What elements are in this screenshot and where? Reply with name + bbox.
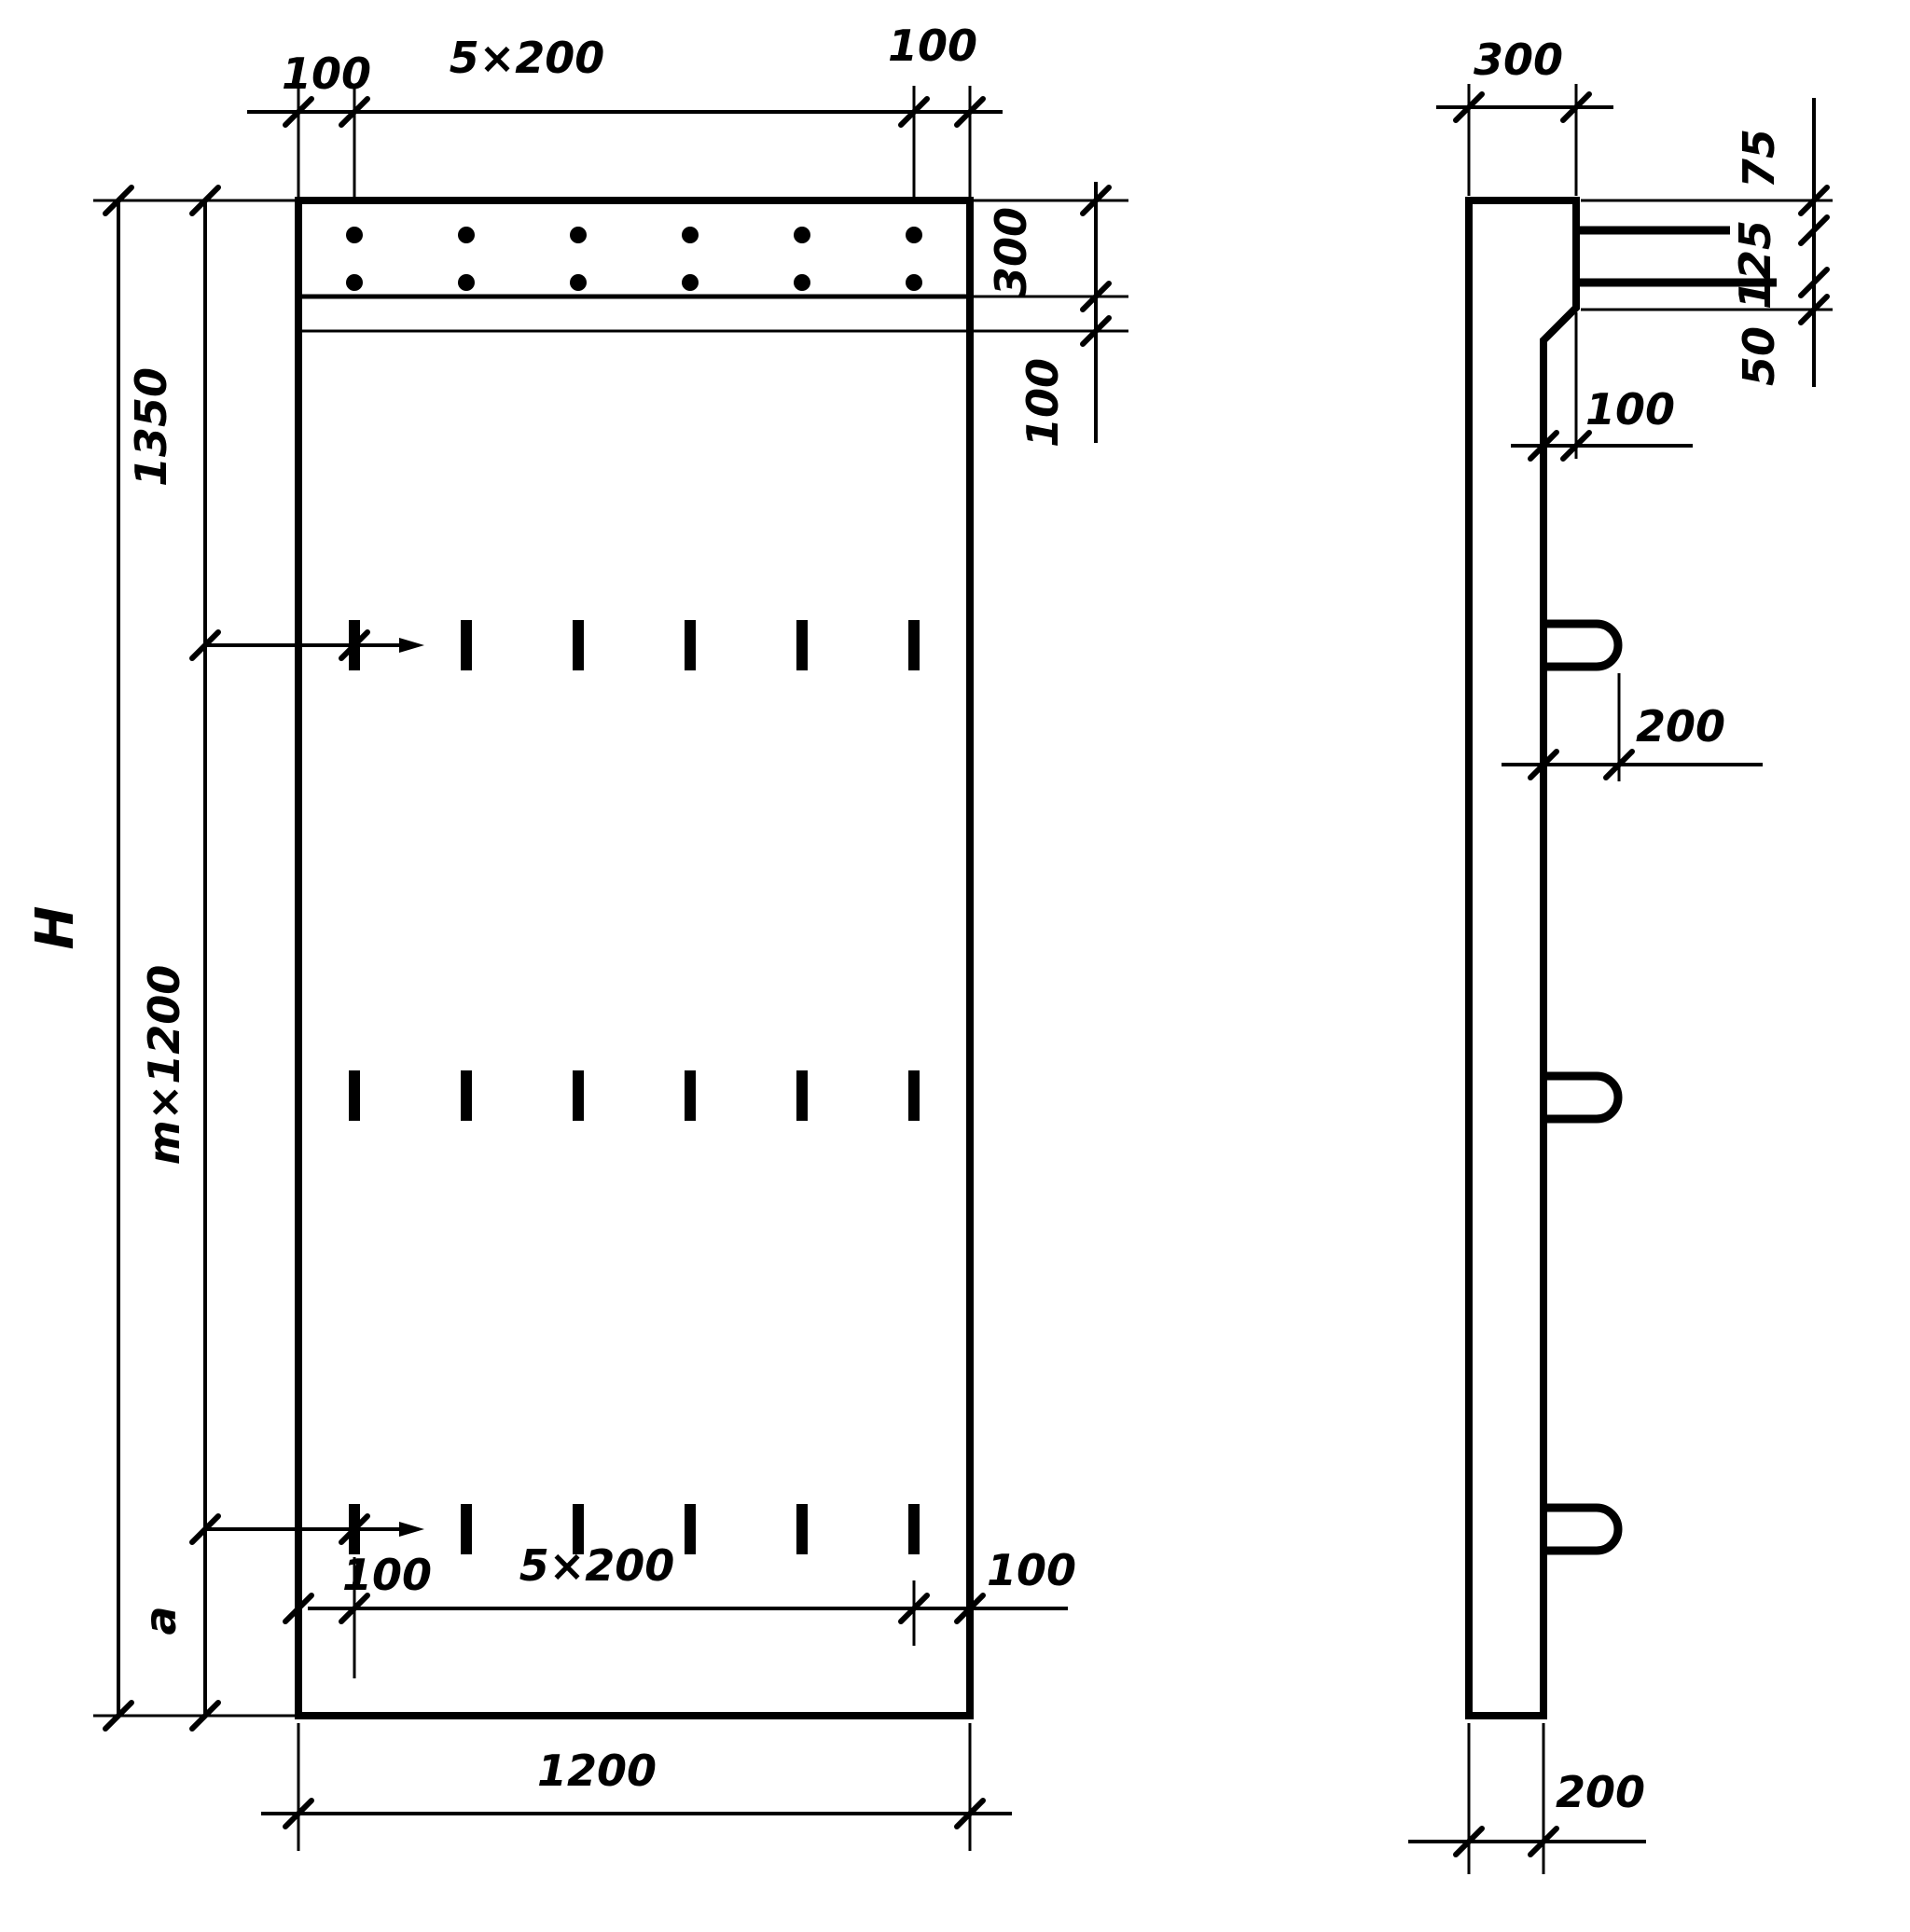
dim-top-right-100: 100 bbox=[888, 21, 977, 71]
side-top-width: 300 bbox=[1436, 34, 1613, 196]
lifting-loop bbox=[1543, 1076, 1618, 1119]
dim-side-200-loop: 200 bbox=[1636, 701, 1725, 752]
dim-a: a bbox=[135, 1606, 186, 1635]
dim-top-left-100: 100 bbox=[282, 48, 371, 99]
front-right-dimensions: 300 100 bbox=[970, 182, 1128, 448]
dim-bottom-right-100: 100 bbox=[987, 1545, 1076, 1595]
dim-1350: 1350 bbox=[126, 367, 176, 487]
dim-side-300: 300 bbox=[1474, 34, 1563, 85]
dim-band-300: 300 bbox=[986, 207, 1036, 297]
dim-top-5x200: 5×200 bbox=[450, 33, 605, 83]
dim-side-100: 100 bbox=[1585, 384, 1675, 435]
drawing-sheet: 100 5×200 100 300 100 H bbox=[0, 0, 1910, 1932]
dim-bottom-5x200: 5×200 bbox=[519, 1540, 675, 1591]
lifting-loop bbox=[1543, 1508, 1618, 1551]
front-view: 100 5×200 100 300 100 H bbox=[25, 21, 1128, 1851]
panel-front-outline bbox=[298, 200, 970, 1716]
panel-technical-drawing: 100 5×200 100 300 100 H bbox=[0, 0, 1910, 1932]
dim-side-75: 75 bbox=[1734, 129, 1784, 188]
panel-side-outline bbox=[1469, 200, 1576, 1716]
dim-side-200-bottom: 200 bbox=[1556, 1767, 1645, 1817]
dim-side-50: 50 bbox=[1734, 326, 1784, 386]
dim-mx1200: m×1200 bbox=[139, 965, 189, 1166]
dim-bottom-left-100: 100 bbox=[342, 1550, 432, 1600]
side-bottom-width: 200 bbox=[1408, 1723, 1646, 1874]
dim-side-125: 125 bbox=[1730, 220, 1780, 310]
front-overall-width: 1200 bbox=[261, 1723, 1012, 1851]
dim-width-1200: 1200 bbox=[537, 1746, 657, 1796]
dim-overall-height-H: H bbox=[25, 906, 86, 950]
front-top-dimension-chain: 100 5×200 100 bbox=[247, 21, 1003, 198]
lifting-loop bbox=[1543, 624, 1618, 667]
side-view: 300 75 125 50 100 200 bbox=[1408, 34, 1833, 1874]
side-right-dimension-chain: 75 125 50 bbox=[1730, 98, 1827, 387]
dim-strip-100: 100 bbox=[1017, 358, 1068, 448]
